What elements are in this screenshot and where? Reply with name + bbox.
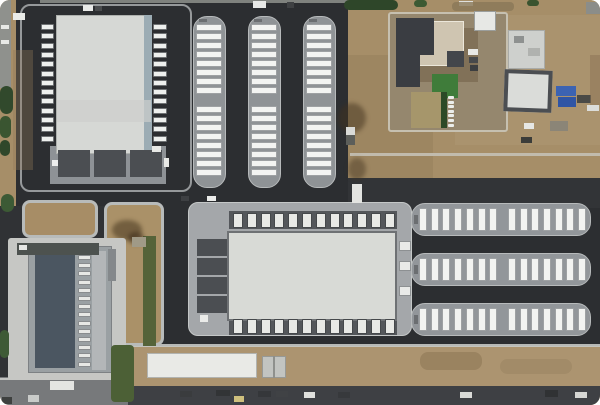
vehicle-white: [83, 5, 93, 11]
dc1-left-hvac-bank-unit: [41, 126, 54, 132]
utility-awning-box: [19, 245, 27, 250]
vegetation-clump: [0, 330, 9, 358]
dc2-bottom-ahu-bank-unit: [343, 319, 353, 334]
battery-row-1-unit: [543, 208, 551, 231]
battery-column-1-unit: [196, 142, 222, 149]
battery-column-1-unit: [196, 33, 222, 40]
battery-column-1-unit: [196, 87, 222, 94]
dc1-right-hvac-bank-unit: [153, 61, 167, 67]
construction-trailer-row: [147, 353, 257, 378]
aerial-photo: [0, 0, 600, 405]
dc1-right-hvac-bank-unit: [153, 108, 167, 114]
dc2-side-unit: [399, 241, 411, 251]
garden-planting-rows: [411, 92, 442, 128]
battery-column-2-unit: [251, 42, 277, 49]
pad-end-marker: [414, 215, 418, 224]
battery-column-2-unit: [251, 169, 277, 176]
battery-column-3-unit: [306, 151, 332, 158]
dc1-right-hvac-bank-unit: [153, 52, 167, 58]
dc2-generator-cluster: [197, 277, 227, 294]
vehicle-white: [524, 123, 534, 129]
dc2-top-ahu-bank-unit: [371, 213, 381, 228]
vehicle-dark: [216, 390, 230, 396]
utility-louver-bank-unit: [78, 296, 91, 301]
garden-steps-bank-unit: [448, 101, 454, 104]
utility-louver-bank-unit: [78, 280, 91, 285]
road-dash: [1, 40, 9, 44]
battery-row-3-unit: [520, 308, 528, 331]
dc2-top-ahu-bank-unit: [274, 213, 284, 228]
truck-bed: [346, 135, 355, 145]
battery-row-2-unit: [442, 258, 450, 281]
battery-column-2-unit: [251, 124, 277, 131]
battery-row-1-unit: [508, 208, 516, 231]
dc1-generator-cluster: [130, 150, 162, 177]
dc2-top-ahu-bank-unit: [233, 213, 243, 228]
battery-row-1-unit: [454, 208, 462, 231]
battery-column-2-unit: [251, 69, 277, 76]
vehicle-white-van: [13, 13, 25, 20]
battery-column-2-unit: [251, 87, 277, 94]
dc2-side-unit: [399, 286, 411, 296]
battery-column-2-unit: [251, 133, 277, 140]
dc1-right-hvac-bank-unit: [153, 89, 167, 95]
battery-row-1-unit: [419, 208, 427, 231]
utility-louver-bank-unit: [78, 353, 91, 358]
vehicle-dark: [545, 390, 558, 397]
vegetation-clump: [0, 116, 11, 138]
bottom-road: [128, 386, 600, 405]
battery-column-1-unit: [196, 124, 222, 131]
dc2-side-unit: [399, 261, 411, 271]
battery-column-2-unit: [251, 33, 277, 40]
vehicle-white-trailer: [352, 184, 362, 203]
left-road-upper: [0, 0, 11, 88]
garden-steps-bank-unit: [448, 114, 454, 117]
pad-end-marker: [254, 19, 262, 22]
battery-column-2-unit: [251, 60, 277, 67]
dc2-white-box: [200, 315, 208, 322]
dc1-right-hvac-bank-unit: [153, 136, 167, 142]
utility-louver-bank-unit: [78, 271, 91, 276]
battery-column-2-unit: [251, 51, 277, 58]
battery-column-2-unit: [251, 142, 277, 149]
garden-steps-bank-unit: [448, 110, 454, 113]
garden-hedge-border: [441, 92, 447, 128]
dc1-dock-box: [152, 146, 161, 152]
vehicle-white: [460, 392, 472, 398]
vehicle-dark: [287, 2, 294, 8]
battery-row-2-unit: [543, 258, 551, 281]
dirt-shade-rightedge: [590, 55, 600, 105]
dc1-left-hvac-bank-unit: [41, 89, 54, 95]
blue-tarp-pallets: [558, 97, 576, 107]
dc2-bottom-ahu-bank-unit: [274, 319, 284, 334]
battery-column-1-unit: [196, 151, 222, 158]
battery-row-2-unit: [555, 258, 563, 281]
battery-row-1-unit: [520, 208, 528, 231]
vegetation-strip: [111, 345, 134, 402]
dc1-left-hvac-bank-unit: [41, 33, 54, 39]
equipment-gray: [550, 121, 568, 131]
battery-row-3-unit: [442, 308, 450, 331]
dc2-top-ahu-bank-unit: [330, 213, 340, 228]
dc1-left-hvac-bank-unit: [41, 136, 54, 142]
vegetation-strip: [143, 236, 156, 346]
battery-column-3-unit: [306, 60, 332, 67]
battery-row-3-unit: [419, 308, 427, 331]
dc1-right-hvac-bank-unit: [153, 117, 167, 123]
dc2-top-ahu-bank-unit: [385, 213, 395, 228]
dc1-generator-cluster: [94, 150, 126, 177]
dc2-bottom-ahu-bank-unit: [233, 319, 243, 334]
vegetation-clump: [0, 86, 13, 114]
vehicle-white: [587, 105, 599, 111]
utility-louver-bank-unit: [78, 321, 91, 326]
garden-steps-bank-unit: [448, 96, 454, 99]
dc2-top-ahu-bank-unit: [261, 213, 271, 228]
battery-column-3-unit: [306, 33, 332, 40]
battery-column-3-unit: [306, 87, 332, 94]
dc1-right-hvac-bank-unit: [153, 80, 167, 86]
vehicle-dark: [521, 137, 532, 143]
battery-column-3-unit: [306, 78, 332, 85]
battery-column-1-unit: [196, 69, 222, 76]
utility-roof-structure: [108, 249, 116, 281]
battery-column-3-unit: [306, 69, 332, 76]
battery-column-1-unit: [196, 60, 222, 67]
hedge: [344, 0, 398, 10]
hedge: [527, 0, 539, 6]
dc1-left-hvac-bank-unit: [41, 71, 54, 77]
dc1-left-hvac-bank-unit: [41, 80, 54, 86]
white-shed: [474, 11, 496, 31]
battery-column-1-unit: [196, 24, 222, 31]
dc1-left-hvac-bank-unit: [41, 98, 54, 104]
pad-end-marker: [199, 19, 207, 22]
battery-row-3-unit: [431, 308, 439, 331]
utility-roof-light-bay: [92, 251, 106, 370]
battery-row-3-unit: [489, 308, 497, 331]
battery-column-3-unit: [306, 51, 332, 58]
battery-row-3-unit: [466, 308, 474, 331]
road-dash: [1, 25, 9, 29]
vehicle-dark: [180, 391, 192, 397]
dc1-left-hvac-bank-unit: [41, 117, 54, 123]
rooftop-solar-array: [35, 253, 75, 368]
vegetation-clump: [0, 140, 10, 156]
utility-louver-bank-unit: [78, 337, 91, 342]
garden-steps-bank-unit: [448, 124, 454, 127]
vehicle-dark: [469, 57, 478, 63]
dc2-bottom-ahu-bank-unit: [357, 319, 367, 334]
battery-row-2-unit: [578, 258, 586, 281]
office-dark-roof-wing: [396, 40, 420, 87]
battery-row-3-unit: [508, 308, 516, 331]
battery-column-1-unit: [196, 133, 222, 140]
utility-louver-bank-unit: [78, 263, 91, 268]
dirt-dark-patch: [500, 359, 572, 374]
battery-column-3-unit: [306, 142, 332, 149]
construction-material: [514, 36, 524, 43]
blue-tarp-pallets: [556, 86, 576, 96]
battery-column-3-unit: [306, 42, 332, 49]
battery-row-1-unit: [566, 208, 574, 231]
battery-row-2-unit: [489, 258, 497, 281]
battery-row-2-unit: [454, 258, 462, 281]
hedge: [414, 0, 427, 7]
vehicle-dark: [258, 391, 271, 397]
vegetation-clump: [1, 194, 14, 212]
vehicle-white: [468, 49, 478, 55]
dc1-left-hvac-bank-unit: [41, 108, 54, 114]
battery-row-2-unit: [419, 258, 427, 281]
dc2-top-ahu-bank-unit: [316, 213, 326, 228]
battery-column-1-unit: [196, 51, 222, 58]
battery-column-2-unit: [251, 24, 277, 31]
vehicle-tan: [234, 396, 244, 402]
battery-column-1-unit: [196, 106, 222, 113]
dc1-right-hvac-bank-unit: [153, 43, 167, 49]
dc1-right-hvac-bank-unit: [153, 98, 167, 104]
utility-louver-bank-unit: [78, 362, 91, 367]
dc1-right-hvac-bank-unit: [153, 33, 167, 39]
battery-row-3-unit: [478, 308, 486, 331]
graded-dirt-streak: [452, 2, 514, 11]
small-shed-ridge: [273, 356, 275, 378]
utility-louver-bank-unit: [78, 329, 91, 334]
battery-row-2-unit: [508, 258, 516, 281]
dc1-left-hvac-bank-unit: [41, 24, 54, 30]
dc1-left-hvac-bank-unit: [41, 61, 54, 67]
dc2-bottom-ahu-bank-unit: [371, 319, 381, 334]
utility-louver-bank-unit: [78, 288, 91, 293]
battery-row-2-unit: [466, 258, 474, 281]
battery-row-2-unit: [520, 258, 528, 281]
dc2-bottom-ahu-bank-unit: [247, 319, 257, 334]
vehicle-excavator: [132, 237, 146, 247]
vehicle-white: [575, 392, 587, 398]
dc1-right-hvac-bank-unit: [153, 126, 167, 132]
battery-column-2-unit: [251, 160, 277, 167]
dc2-generator-cluster: [197, 258, 227, 275]
dirt-dark-patch: [420, 352, 482, 370]
dc2-bottom-ahu-bank-unit: [385, 319, 395, 334]
battery-row-1-unit: [478, 208, 486, 231]
dc2-bottom-ahu-bank-unit: [302, 319, 312, 334]
dc1-roof: [56, 15, 152, 154]
dc2-generator-cluster: [197, 296, 227, 313]
battery-row-2-unit: [431, 258, 439, 281]
dc2-top-ahu-bank-unit: [247, 213, 257, 228]
battery-row-1-unit: [431, 208, 439, 231]
utility-louver-bank-unit: [78, 312, 91, 317]
garden-steps-bank-unit: [448, 119, 454, 122]
battery-column-1-unit: [196, 115, 222, 122]
dc1-generator-cluster: [58, 150, 90, 177]
dc2-bottom-ahu-bank-unit: [261, 319, 271, 334]
garden-steps-bank-unit: [448, 105, 454, 108]
battery-row-3-unit: [454, 308, 462, 331]
battery-column-3-unit: [306, 24, 332, 31]
office-dark-roof-nub: [447, 51, 464, 67]
dust-blob: [348, 158, 366, 180]
dc2-top-ahu-bank-unit: [343, 213, 353, 228]
vehicle-dark: [470, 65, 478, 71]
battery-column-3-unit: [306, 115, 332, 122]
pad-end-marker: [414, 315, 418, 324]
battery-column-3-unit: [306, 124, 332, 131]
battery-row-3-unit: [531, 308, 539, 331]
vehicle-dark: [338, 392, 350, 398]
dc2-bottom-ahu-bank-unit: [316, 319, 326, 334]
battery-row-1-unit: [466, 208, 474, 231]
vehicle-white: [207, 196, 216, 201]
battery-row-1-unit: [578, 208, 586, 231]
vehicle-dark: [95, 6, 102, 11]
building-under-construction-b: [503, 69, 552, 113]
battery-column-1-unit: [196, 169, 222, 176]
vehicle-dark: [2, 397, 12, 404]
battery-row-1-unit: [531, 208, 539, 231]
dc1-dock-box: [52, 160, 58, 166]
utility-awning: [17, 243, 99, 255]
dc1-right-hvac-bank-unit: [153, 24, 167, 30]
battery-column-1-unit: [196, 42, 222, 49]
vehicle-dark: [276, 391, 288, 397]
battery-row-2-unit: [478, 258, 486, 281]
utility-louver-bank-unit: [78, 304, 91, 309]
battery-row-2-unit: [566, 258, 574, 281]
right-curb-line: [350, 153, 600, 156]
dc2-top-ahu-bank-unit: [357, 213, 367, 228]
battery-column-3-unit: [306, 106, 332, 113]
utility-louver-bank-unit: [78, 345, 91, 350]
battery-column-1-unit: [196, 160, 222, 167]
dc1-roof-glazed-edge: [144, 15, 152, 154]
dirt-shade-left: [13, 50, 33, 170]
battery-column-3-unit: [306, 133, 332, 140]
battery-column-2-unit: [251, 115, 277, 122]
battery-row-1-unit: [555, 208, 563, 231]
battery-column-2-unit: [251, 151, 277, 158]
battery-column-2-unit: [251, 106, 277, 113]
truck-cab: [346, 127, 355, 135]
battery-row-1-unit: [442, 208, 450, 231]
dc2-generator-cluster: [197, 239, 227, 256]
pad-end-marker: [309, 19, 317, 22]
battery-row-3-unit: [555, 308, 563, 331]
aerial-photo-frame: [0, 0, 600, 405]
battery-row-2-unit: [531, 258, 539, 281]
battery-column-1-unit: [196, 78, 222, 85]
dc1-dock-box: [164, 158, 169, 167]
dc1-roof-shade: [57, 100, 151, 122]
dc2-bottom-ahu-bank-unit: [330, 319, 340, 334]
vehicle-white: [304, 392, 315, 398]
dc1-right-hvac-bank-unit: [153, 71, 167, 77]
pad-end-marker: [414, 265, 418, 274]
top-sidewalk-strip: [40, 0, 348, 3]
dc2-top-ahu-bank-unit: [302, 213, 312, 228]
vehicle-white: [253, 1, 266, 8]
utility-louver-bank-unit: [78, 255, 91, 260]
bottom-strip-curb: [128, 344, 600, 347]
vehicle-white-truck: [50, 381, 74, 390]
dc1-left-hvac-bank-unit: [41, 43, 54, 49]
vehicle-dark: [181, 196, 189, 201]
battery-column-3-unit: [306, 169, 332, 176]
battery-row-3-unit: [566, 308, 574, 331]
battery-row-1-unit: [489, 208, 497, 231]
dc2-roof: [227, 231, 397, 321]
vehicle-gray: [586, 2, 600, 14]
vehicle-dark: [577, 95, 591, 103]
vehicle-gray: [28, 395, 39, 402]
dc2-top-ahu-bank-unit: [288, 213, 298, 228]
graded-pad-a: [22, 200, 98, 238]
battery-row-3-unit: [543, 308, 551, 331]
construction-material: [528, 48, 540, 56]
dc1-left-hvac-bank-unit: [41, 52, 54, 58]
battery-column-2-unit: [251, 78, 277, 85]
dc2-bottom-ahu-bank-unit: [288, 319, 298, 334]
battery-column-3-unit: [306, 160, 332, 167]
battery-row-3-unit: [578, 308, 586, 331]
